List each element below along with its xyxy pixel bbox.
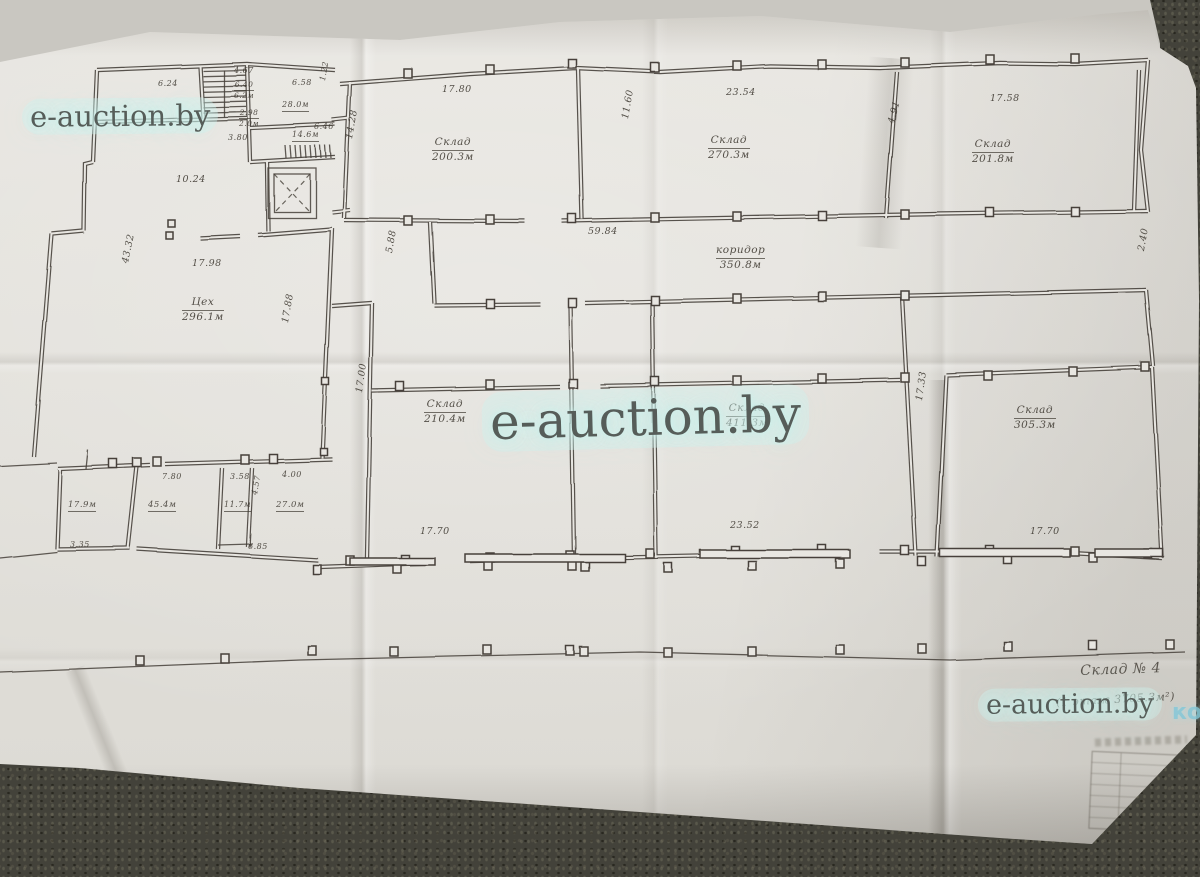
watermark-e-auction-top-left: e-auction.by — [22, 97, 219, 135]
pilaster — [568, 214, 576, 223]
pilaster — [901, 373, 909, 382]
ramp-edge-line — [0, 652, 1185, 672]
pilaster — [818, 374, 826, 383]
pilaster — [153, 457, 161, 466]
pilaster — [836, 645, 844, 654]
pilaster — [404, 216, 412, 225]
pilaster — [651, 377, 659, 386]
column — [168, 220, 175, 227]
pilaster — [483, 645, 491, 654]
pilaster — [733, 376, 741, 385]
stair-tread — [203, 70, 246, 71]
pilaster — [836, 559, 844, 568]
pilaster — [986, 208, 994, 217]
pilaster — [1069, 367, 1077, 376]
stair-tread — [295, 145, 296, 158]
stair-tread — [310, 145, 311, 158]
pilaster — [918, 557, 926, 566]
watermark-e-auction-center: e-auction.by — [481, 384, 810, 453]
stair-tread — [203, 96, 246, 97]
stair-tread — [203, 80, 246, 81]
pilaster — [580, 647, 588, 656]
pilaster — [396, 382, 404, 391]
pilaster — [1004, 642, 1012, 651]
pilaster — [486, 215, 494, 224]
pilaster — [646, 549, 654, 558]
column — [320, 448, 327, 455]
pilaster — [1071, 207, 1079, 216]
dock-apron — [940, 549, 1070, 557]
pilaster — [664, 648, 672, 657]
pilaster — [748, 647, 756, 656]
pilaster — [651, 296, 659, 305]
dock-apron — [465, 554, 625, 562]
pilaster — [818, 292, 826, 301]
pilaster — [733, 212, 741, 221]
stair-tread — [203, 91, 246, 92]
pilaster — [313, 565, 321, 574]
pilasters-and-treads — [109, 54, 1174, 665]
elevator-shaft-inner — [274, 174, 310, 212]
pilaster — [569, 379, 577, 388]
pilaster — [651, 63, 659, 72]
pilaster — [581, 562, 589, 571]
pilaster — [901, 291, 909, 300]
pilaster — [901, 58, 909, 67]
pilaster — [733, 294, 741, 303]
pilaster — [133, 458, 141, 467]
pilaster — [221, 654, 229, 663]
pilaster — [1089, 641, 1097, 650]
watermark-ko: ко — [1172, 700, 1200, 725]
watermark-e-auction-bottom-right: e-auction.by — [978, 687, 1162, 722]
dock-apron — [700, 550, 850, 558]
column — [322, 378, 329, 385]
pilaster — [748, 561, 756, 570]
pilaster — [901, 546, 909, 555]
stair-tread — [285, 145, 286, 158]
photo-scene: Цех296.1м17.9843.3217.8810.24Склад200.3м… — [0, 0, 1200, 844]
pilaster — [486, 380, 494, 389]
pilaster — [1141, 362, 1149, 371]
pilaster — [486, 65, 494, 74]
pilaster — [1071, 547, 1079, 556]
pilaster — [986, 55, 994, 64]
column — [166, 232, 173, 239]
stair-tread — [203, 86, 246, 87]
pilaster — [404, 69, 412, 78]
stair-tread — [300, 145, 301, 158]
pilaster — [1166, 640, 1174, 649]
pilaster — [390, 647, 398, 656]
pilaster — [651, 213, 659, 222]
stair-tread — [203, 75, 246, 76]
pilaster — [136, 656, 144, 665]
pilaster — [109, 459, 117, 468]
pilaster — [269, 454, 277, 463]
pilaster — [1071, 54, 1079, 63]
pilaster — [818, 211, 826, 220]
stair-tread — [290, 145, 291, 158]
elevator-cross — [274, 174, 310, 212]
pilaster — [918, 644, 926, 653]
stair-tread — [305, 145, 306, 158]
pilaster — [901, 210, 909, 219]
pilaster — [733, 61, 741, 70]
dock-apron — [350, 558, 435, 565]
pilaster — [818, 60, 826, 69]
pilaster — [568, 59, 576, 68]
dock-apron — [1095, 549, 1163, 557]
pilaster — [664, 563, 672, 572]
pilaster — [568, 298, 576, 307]
title-block-stamp — [1088, 751, 1193, 833]
pilaster — [308, 646, 316, 655]
pilaster — [566, 646, 574, 655]
plan-linework — [0, 54, 1185, 672]
pilaster — [486, 299, 494, 308]
pilaster — [984, 371, 992, 380]
pilaster — [241, 455, 249, 464]
